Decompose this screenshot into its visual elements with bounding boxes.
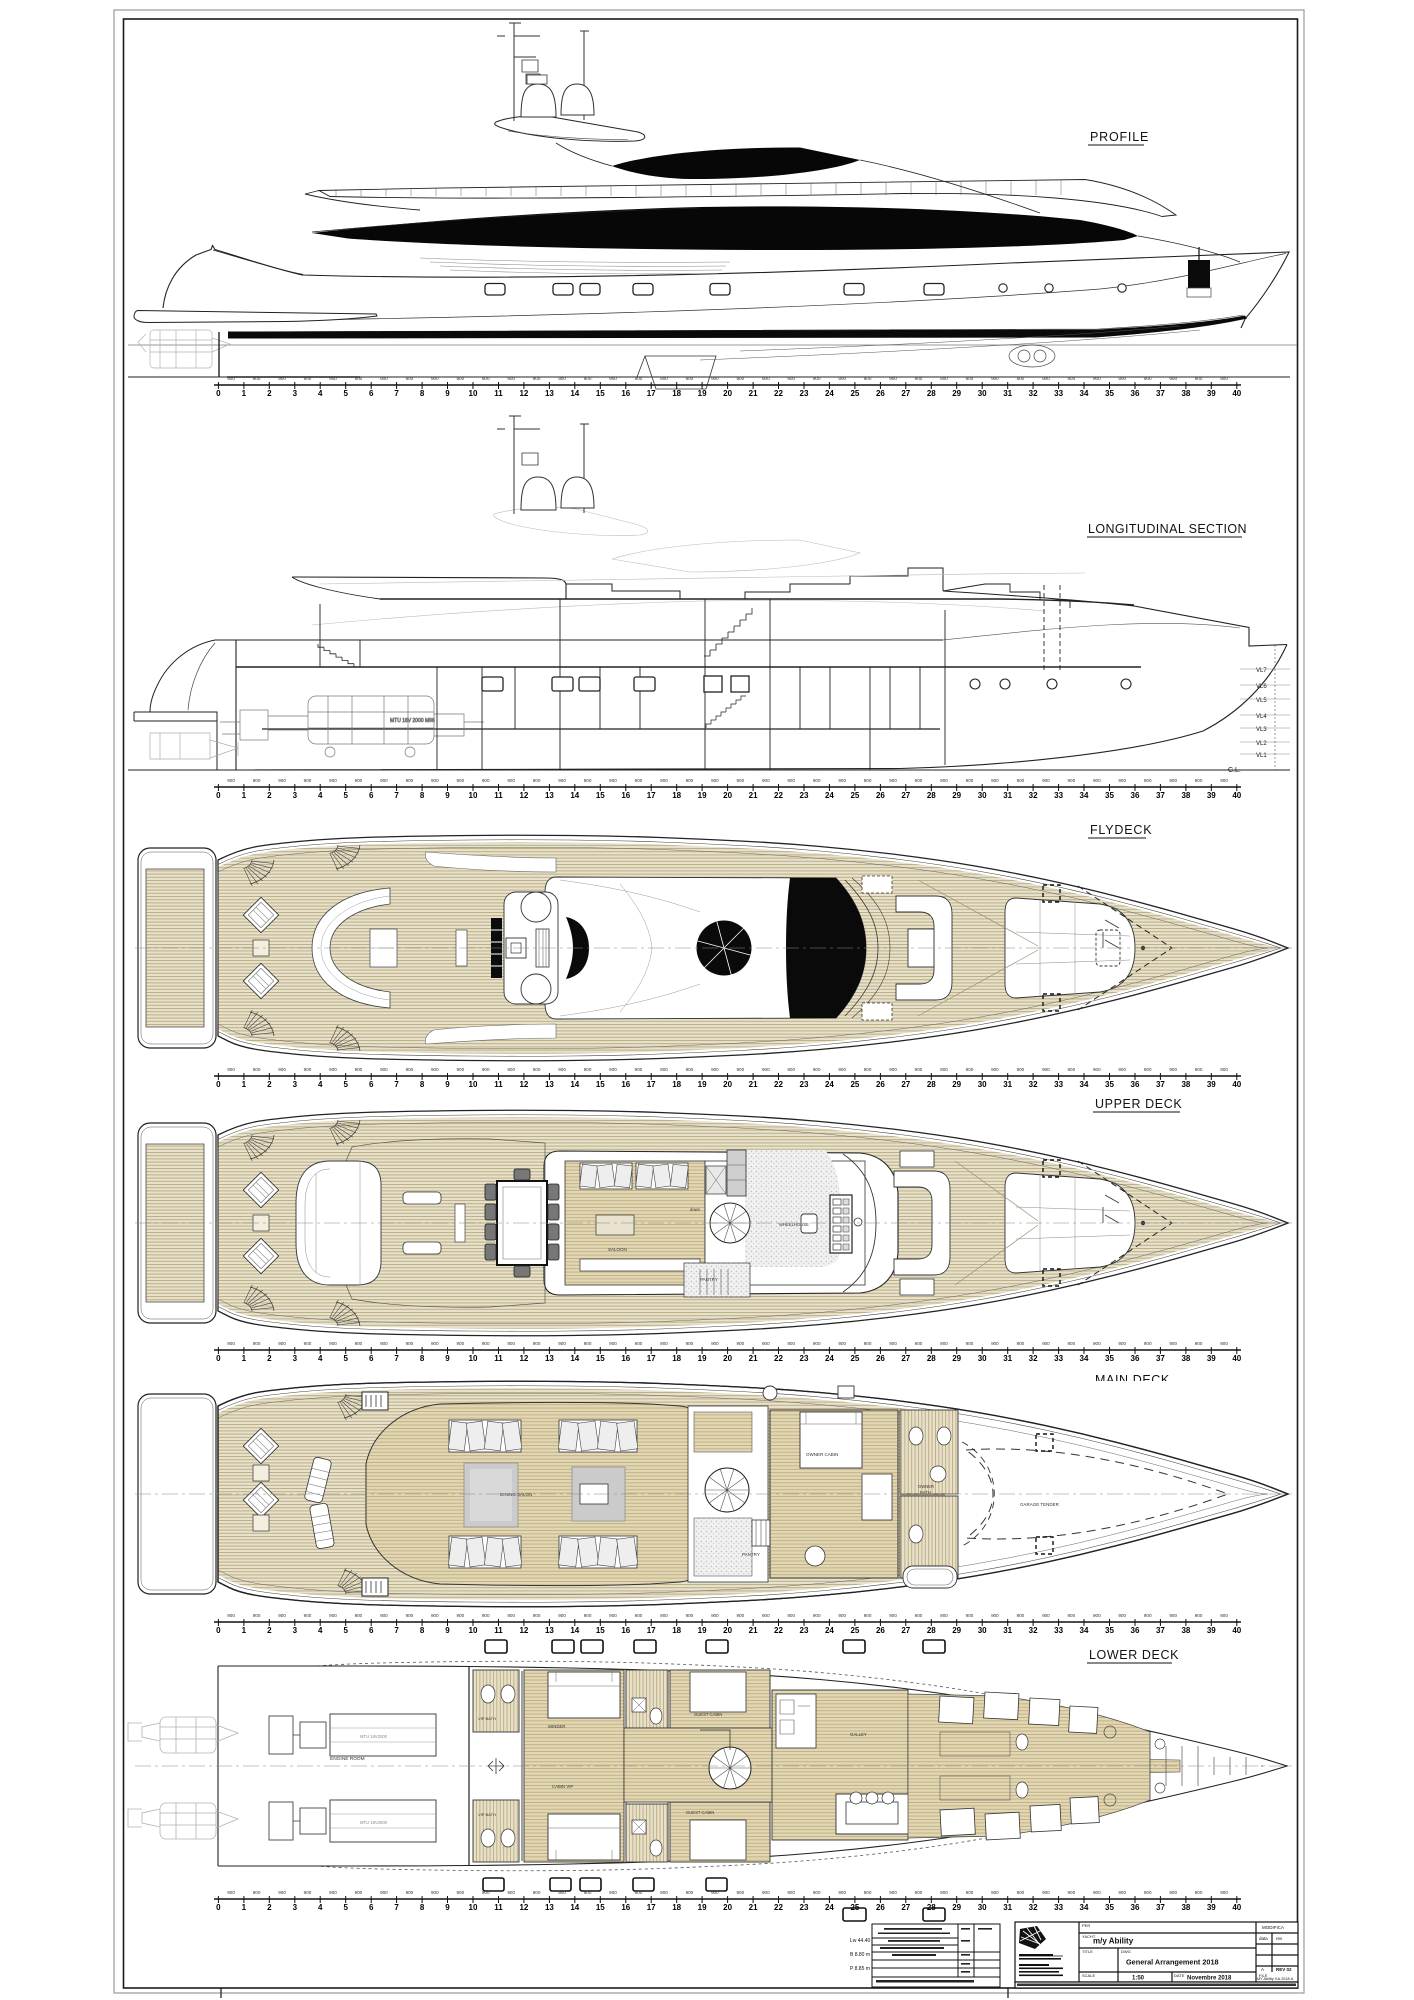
svg-text:900: 900	[329, 778, 337, 783]
svg-text:27: 27	[901, 1626, 910, 1635]
svg-text:900: 900	[889, 778, 897, 783]
svg-text:1: 1	[242, 1626, 247, 1635]
svg-text:900: 900	[1195, 1067, 1203, 1072]
svg-text:24: 24	[825, 1354, 834, 1363]
svg-text:23: 23	[800, 389, 809, 398]
svg-text:DATE: DATE	[1174, 1973, 1185, 1978]
svg-text:21: 21	[749, 1080, 758, 1089]
svg-text:900: 900	[660, 778, 668, 783]
svg-text:6: 6	[369, 389, 374, 398]
svg-text:26: 26	[876, 389, 885, 398]
svg-text:P 8.85 m: P 8.85 m	[850, 1966, 870, 1972]
svg-text:900: 900	[355, 1341, 363, 1346]
svg-text:14: 14	[570, 791, 579, 800]
svg-text:25: 25	[850, 389, 859, 398]
svg-text:TITLE: TITLE	[1082, 1949, 1093, 1954]
svg-text:GUEST CABIN: GUEST CABIN	[694, 1712, 722, 1717]
svg-text:31: 31	[1003, 1080, 1012, 1089]
svg-text:900: 900	[711, 1890, 719, 1895]
svg-text:2: 2	[267, 1626, 272, 1635]
svg-text:33: 33	[1054, 1626, 1063, 1635]
svg-text:900: 900	[1118, 1613, 1126, 1618]
svg-text:0: 0	[216, 1354, 221, 1363]
svg-text:30: 30	[978, 1903, 987, 1912]
svg-text:18: 18	[672, 1354, 681, 1363]
svg-text:24: 24	[825, 791, 834, 800]
svg-text:900: 900	[584, 1067, 592, 1072]
svg-text:900: 900	[762, 1067, 770, 1072]
svg-text:34: 34	[1080, 791, 1089, 800]
svg-text:900: 900	[406, 376, 414, 381]
svg-text:38: 38	[1181, 389, 1190, 398]
svg-text:12: 12	[519, 389, 528, 398]
svg-text:data: data	[1259, 1936, 1268, 1941]
svg-text:900: 900	[1067, 1341, 1075, 1346]
svg-text:2: 2	[267, 389, 272, 398]
svg-text:900: 900	[304, 1613, 312, 1618]
svg-text:2: 2	[267, 1354, 272, 1363]
svg-text:900: 900	[1169, 1067, 1177, 1072]
svg-text:900: 900	[1220, 1067, 1228, 1072]
svg-text:rev: rev	[1276, 1936, 1283, 1941]
svg-text:25: 25	[850, 1080, 859, 1089]
svg-text:900: 900	[1195, 778, 1203, 783]
svg-text:900: 900	[406, 778, 414, 783]
svg-text:35: 35	[1105, 1354, 1114, 1363]
svg-text:17: 17	[647, 389, 656, 398]
svg-text:900: 900	[609, 376, 617, 381]
svg-text:14: 14	[570, 1626, 579, 1635]
svg-text:900: 900	[482, 376, 490, 381]
svg-text:900: 900	[813, 1890, 821, 1895]
svg-text:0: 0	[216, 1903, 221, 1912]
svg-text:GARAGE TENDER: GARAGE TENDER	[1020, 1502, 1060, 1507]
svg-text:7: 7	[394, 791, 399, 800]
svg-text:900: 900	[584, 1613, 592, 1618]
svg-text:900: 900	[1220, 778, 1228, 783]
svg-text:900: 900	[380, 1341, 388, 1346]
svg-text:15: 15	[596, 389, 605, 398]
svg-text:4: 4	[318, 1626, 323, 1635]
svg-text:9: 9	[445, 1903, 450, 1912]
svg-text:DWG: DWG	[1121, 1949, 1131, 1954]
svg-text:VIP BATH: VIP BATH	[478, 1812, 496, 1817]
svg-text:23: 23	[800, 791, 809, 800]
svg-text:REV 02: REV 02	[1276, 1967, 1292, 1972]
svg-text:17: 17	[647, 1903, 656, 1912]
svg-text:900: 900	[864, 778, 872, 783]
svg-text:18: 18	[672, 1903, 681, 1912]
svg-text:32: 32	[1029, 791, 1038, 800]
svg-text:900: 900	[635, 778, 643, 783]
svg-text:900: 900	[355, 1890, 363, 1895]
svg-text:900: 900	[278, 778, 286, 783]
svg-text:36: 36	[1131, 791, 1140, 800]
svg-text:900: 900	[711, 1613, 719, 1618]
svg-text:General Arrangement 2018: General Arrangement 2018	[1126, 1958, 1219, 1967]
svg-text:PER: PER	[1082, 1923, 1090, 1928]
svg-text:900: 900	[380, 376, 388, 381]
svg-text:19: 19	[698, 1354, 707, 1363]
svg-text:MY Ability GA.2018.A: MY Ability GA.2018.A	[1257, 1977, 1294, 1981]
svg-text:PANTRY: PANTRY	[700, 1277, 718, 1282]
svg-text:21: 21	[749, 1354, 758, 1363]
svg-text:900: 900	[1017, 376, 1025, 381]
svg-text:19: 19	[698, 791, 707, 800]
svg-text:900: 900	[329, 376, 337, 381]
svg-text:900: 900	[406, 1890, 414, 1895]
svg-text:36: 36	[1131, 1626, 1140, 1635]
svg-text:27: 27	[901, 389, 910, 398]
svg-text:900: 900	[711, 1067, 719, 1072]
svg-text:40: 40	[1232, 1080, 1241, 1089]
svg-text:900: 900	[838, 1613, 846, 1618]
svg-text:2: 2	[267, 1903, 272, 1912]
svg-text:27: 27	[901, 791, 910, 800]
svg-text:37: 37	[1156, 1903, 1165, 1912]
svg-text:900: 900	[915, 1613, 923, 1618]
svg-text:40: 40	[1232, 1903, 1241, 1912]
svg-text:900: 900	[864, 1067, 872, 1072]
svg-text:26: 26	[876, 1354, 885, 1363]
svg-text:29: 29	[952, 791, 961, 800]
svg-text:900: 900	[635, 1341, 643, 1346]
svg-text:down: down	[690, 1207, 701, 1212]
svg-text:23: 23	[800, 1626, 809, 1635]
svg-text:24: 24	[825, 1626, 834, 1635]
svg-text:900: 900	[940, 376, 948, 381]
svg-text:12: 12	[519, 1080, 528, 1089]
svg-text:6: 6	[369, 1354, 374, 1363]
svg-text:0: 0	[216, 389, 221, 398]
svg-text:38: 38	[1181, 1354, 1190, 1363]
svg-text:18: 18	[672, 1626, 681, 1635]
svg-text:31: 31	[1003, 1354, 1012, 1363]
svg-text:900: 900	[431, 778, 439, 783]
svg-text:8: 8	[420, 389, 425, 398]
svg-text:900: 900	[762, 376, 770, 381]
svg-text:40: 40	[1232, 1354, 1241, 1363]
svg-text:34: 34	[1080, 1354, 1089, 1363]
svg-text:900: 900	[991, 1613, 999, 1618]
svg-text:3: 3	[293, 791, 298, 800]
svg-text:11: 11	[494, 1080, 503, 1089]
svg-text:12: 12	[519, 791, 528, 800]
svg-text:20: 20	[723, 1354, 732, 1363]
svg-text:10: 10	[469, 1903, 478, 1912]
svg-text:900: 900	[889, 1341, 897, 1346]
svg-text:900: 900	[813, 1341, 821, 1346]
svg-text:37: 37	[1156, 1080, 1165, 1089]
svg-text:23: 23	[800, 1080, 809, 1089]
svg-text:900: 900	[940, 1067, 948, 1072]
svg-text:900: 900	[1144, 778, 1152, 783]
svg-text:34: 34	[1080, 1626, 1089, 1635]
svg-text:900: 900	[1067, 1613, 1075, 1618]
svg-text:900: 900	[1042, 1613, 1050, 1618]
svg-text:900: 900	[380, 1613, 388, 1618]
svg-text:900: 900	[431, 1890, 439, 1895]
svg-text:900: 900	[253, 778, 261, 783]
svg-text:900: 900	[355, 1613, 363, 1618]
svg-text:39: 39	[1207, 1626, 1216, 1635]
svg-text:900: 900	[787, 1890, 795, 1895]
svg-text:900: 900	[584, 778, 592, 783]
svg-text:4: 4	[318, 1903, 323, 1912]
svg-text:900: 900	[355, 778, 363, 783]
svg-text:900: 900	[813, 376, 821, 381]
svg-text:900: 900	[609, 1341, 617, 1346]
svg-text:ENGINE ROOM: ENGINE ROOM	[330, 1756, 365, 1762]
svg-text:900: 900	[456, 778, 464, 783]
svg-text:900: 900	[482, 778, 490, 783]
svg-text:900: 900	[1144, 1067, 1152, 1072]
svg-text:8: 8	[420, 1626, 425, 1635]
svg-text:MTU 16V2000: MTU 16V2000	[360, 1820, 388, 1825]
svg-text:900: 900	[304, 1067, 312, 1072]
svg-text:28: 28	[927, 1080, 936, 1089]
svg-text:5: 5	[343, 1626, 348, 1635]
svg-text:Novembre 2018: Novembre 2018	[1187, 1976, 1232, 1982]
svg-text:30: 30	[978, 1354, 987, 1363]
svg-text:900: 900	[482, 1067, 490, 1072]
svg-text:1:50: 1:50	[1132, 1976, 1145, 1982]
svg-text:35: 35	[1105, 389, 1114, 398]
svg-text:900: 900	[253, 376, 261, 381]
svg-text:39: 39	[1207, 1080, 1216, 1089]
svg-text:15: 15	[596, 1354, 605, 1363]
svg-text:900: 900	[991, 1341, 999, 1346]
svg-text:900: 900	[966, 1613, 974, 1618]
svg-text:900: 900	[711, 376, 719, 381]
svg-text:21: 21	[749, 791, 758, 800]
svg-text:900: 900	[1093, 778, 1101, 783]
svg-text:900: 900	[482, 1613, 490, 1618]
svg-text:7: 7	[394, 1903, 399, 1912]
svg-text:900: 900	[533, 1613, 541, 1618]
svg-text:B 8.80 m: B 8.80 m	[850, 1952, 870, 1958]
svg-text:900: 900	[940, 1341, 948, 1346]
svg-text:900: 900	[1067, 778, 1075, 783]
svg-text:900: 900	[1093, 1613, 1101, 1618]
svg-text:OWNER CABIN: OWNER CABIN	[806, 1452, 838, 1457]
svg-text:900: 900	[584, 1341, 592, 1346]
svg-text:900: 900	[787, 1067, 795, 1072]
svg-text:900: 900	[1042, 1890, 1050, 1895]
svg-text:6: 6	[369, 1903, 374, 1912]
svg-text:900: 900	[355, 1067, 363, 1072]
svg-text:34: 34	[1080, 1903, 1089, 1912]
svg-text:38: 38	[1181, 1626, 1190, 1635]
svg-text:900: 900	[253, 1890, 261, 1895]
svg-text:29: 29	[952, 389, 961, 398]
svg-text:23: 23	[800, 1903, 809, 1912]
svg-text:900: 900	[736, 376, 744, 381]
svg-text:13: 13	[545, 1080, 554, 1089]
svg-text:900: 900	[355, 376, 363, 381]
svg-text:31: 31	[1003, 791, 1012, 800]
svg-text:900: 900	[278, 376, 286, 381]
svg-text:900: 900	[1220, 1341, 1228, 1346]
svg-text:9: 9	[445, 1626, 450, 1635]
svg-text:900: 900	[1042, 376, 1050, 381]
svg-text:900: 900	[533, 1067, 541, 1072]
svg-text:900: 900	[304, 1341, 312, 1346]
svg-text:900: 900	[1144, 1613, 1152, 1618]
svg-text:13: 13	[545, 791, 554, 800]
svg-text:40: 40	[1232, 1626, 1241, 1635]
svg-text:900: 900	[838, 376, 846, 381]
svg-text:900: 900	[1042, 1341, 1050, 1346]
svg-text:28: 28	[927, 1903, 936, 1912]
svg-text:29: 29	[952, 1903, 961, 1912]
svg-text:900: 900	[1144, 376, 1152, 381]
svg-text:900: 900	[838, 778, 846, 783]
svg-text:900: 900	[1067, 376, 1075, 381]
svg-text:8: 8	[420, 1903, 425, 1912]
svg-text:22: 22	[774, 791, 783, 800]
svg-text:12: 12	[519, 1626, 528, 1635]
svg-text:900: 900	[1042, 1067, 1050, 1072]
svg-text:35: 35	[1105, 1080, 1114, 1089]
svg-text:37: 37	[1156, 791, 1165, 800]
svg-text:900: 900	[915, 376, 923, 381]
svg-text:24: 24	[825, 1080, 834, 1089]
svg-text:900: 900	[1118, 1890, 1126, 1895]
svg-text:23: 23	[800, 1354, 809, 1363]
svg-text:LONGITUDINAL SECTION: LONGITUDINAL SECTION	[1088, 522, 1247, 536]
svg-text:SALOON: SALOON	[608, 1247, 627, 1252]
svg-text:900: 900	[507, 376, 515, 381]
svg-text:900: 900	[278, 1890, 286, 1895]
svg-text:5: 5	[343, 1080, 348, 1089]
svg-text:900: 900	[1017, 1067, 1025, 1072]
svg-text:25: 25	[850, 791, 859, 800]
svg-text:39: 39	[1207, 1903, 1216, 1912]
svg-text:900: 900	[711, 1341, 719, 1346]
svg-text:17: 17	[647, 1354, 656, 1363]
svg-text:33: 33	[1054, 389, 1063, 398]
svg-text:8: 8	[420, 1080, 425, 1089]
svg-text:33: 33	[1054, 1903, 1063, 1912]
svg-text:39: 39	[1207, 1354, 1216, 1363]
svg-text:26: 26	[876, 791, 885, 800]
svg-text:32: 32	[1029, 1626, 1038, 1635]
svg-text:15: 15	[596, 791, 605, 800]
svg-text:34: 34	[1080, 1080, 1089, 1089]
svg-text:21: 21	[749, 1626, 758, 1635]
svg-text:26: 26	[876, 1080, 885, 1089]
svg-text:26: 26	[876, 1903, 885, 1912]
svg-text:900: 900	[686, 1341, 694, 1346]
svg-text:36: 36	[1131, 389, 1140, 398]
svg-text:900: 900	[609, 1613, 617, 1618]
svg-text:1: 1	[242, 1903, 247, 1912]
svg-text:22: 22	[774, 389, 783, 398]
svg-text:900: 900	[736, 1890, 744, 1895]
svg-text:36: 36	[1131, 1903, 1140, 1912]
svg-text:900: 900	[609, 1890, 617, 1895]
svg-text:MTU 16V2000: MTU 16V2000	[360, 1734, 388, 1739]
svg-text:CABIN VIP: CABIN VIP	[552, 1784, 573, 1789]
svg-text:900: 900	[1169, 376, 1177, 381]
svg-text:20: 20	[723, 1626, 732, 1635]
svg-text:19: 19	[698, 389, 707, 398]
svg-text:12: 12	[519, 1354, 528, 1363]
svg-text:900: 900	[940, 1613, 948, 1618]
svg-text:32: 32	[1029, 1903, 1038, 1912]
svg-text:28: 28	[927, 389, 936, 398]
svg-text:900: 900	[1144, 1341, 1152, 1346]
svg-text:20: 20	[723, 1080, 732, 1089]
svg-text:22: 22	[774, 1903, 783, 1912]
svg-text:900: 900	[1093, 1067, 1101, 1072]
svg-text:900: 900	[1169, 1341, 1177, 1346]
svg-text:14: 14	[570, 1354, 579, 1363]
svg-text:20: 20	[723, 1903, 732, 1912]
svg-text:38: 38	[1181, 1903, 1190, 1912]
svg-text:900: 900	[660, 1067, 668, 1072]
svg-text:12: 12	[519, 1903, 528, 1912]
svg-text:35: 35	[1105, 791, 1114, 800]
svg-text:900: 900	[227, 778, 235, 783]
svg-text:900: 900	[456, 376, 464, 381]
svg-text:900: 900	[686, 1613, 694, 1618]
svg-text:29: 29	[952, 1354, 961, 1363]
svg-text:16: 16	[621, 1903, 630, 1912]
svg-text:900: 900	[915, 1890, 923, 1895]
svg-text:900: 900	[736, 1067, 744, 1072]
svg-text:28: 28	[927, 1626, 936, 1635]
svg-text:31: 31	[1003, 389, 1012, 398]
svg-text:13: 13	[545, 389, 554, 398]
svg-text:900: 900	[686, 1067, 694, 1072]
svg-text:5: 5	[343, 1354, 348, 1363]
svg-text:32: 32	[1029, 1080, 1038, 1089]
svg-text:37: 37	[1156, 1626, 1165, 1635]
svg-text:900: 900	[329, 1067, 337, 1072]
svg-text:900: 900	[1169, 1890, 1177, 1895]
svg-text:17: 17	[647, 1626, 656, 1635]
svg-text:900: 900	[1042, 778, 1050, 783]
svg-text:1: 1	[242, 1354, 247, 1363]
svg-text:30: 30	[978, 1626, 987, 1635]
svg-text:36: 36	[1131, 1354, 1140, 1363]
svg-text:UPPER DECK: UPPER DECK	[1095, 1097, 1182, 1111]
svg-text:900: 900	[609, 1067, 617, 1072]
svg-text:900: 900	[406, 1067, 414, 1072]
svg-text:33: 33	[1054, 1354, 1063, 1363]
svg-text:900: 900	[864, 376, 872, 381]
svg-text:37: 37	[1156, 389, 1165, 398]
svg-text:900: 900	[1093, 376, 1101, 381]
svg-text:11: 11	[494, 1626, 503, 1635]
svg-text:13: 13	[545, 1354, 554, 1363]
svg-text:3: 3	[293, 1626, 298, 1635]
svg-text:900: 900	[558, 1890, 566, 1895]
svg-text:25: 25	[850, 1354, 859, 1363]
svg-text:39: 39	[1207, 389, 1216, 398]
svg-text:900: 900	[380, 778, 388, 783]
svg-text:900: 900	[507, 1613, 515, 1618]
svg-text:900: 900	[380, 1890, 388, 1895]
svg-text:900: 900	[787, 376, 795, 381]
svg-text:900: 900	[227, 376, 235, 381]
svg-text:900: 900	[864, 1341, 872, 1346]
svg-text:16: 16	[621, 389, 630, 398]
svg-text:900: 900	[227, 1613, 235, 1618]
svg-text:11: 11	[494, 389, 503, 398]
